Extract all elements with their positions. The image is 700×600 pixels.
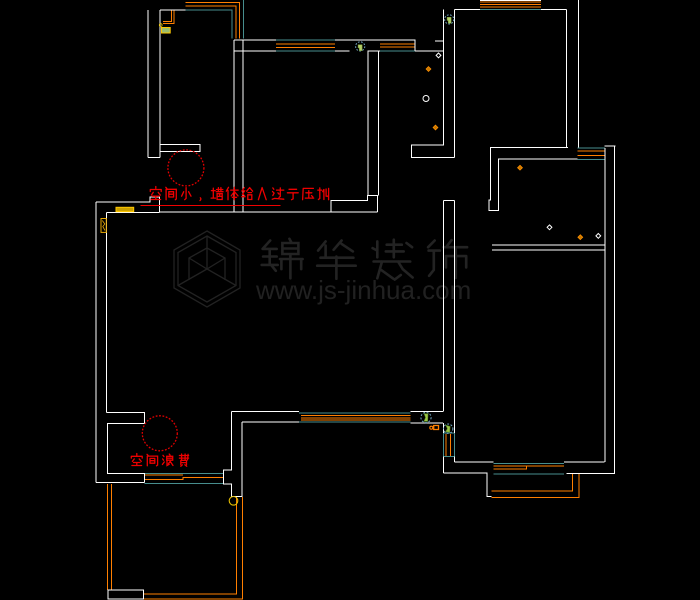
svg-text:www.js-jinhua.com: www.js-jinhua.com <box>255 275 471 305</box>
